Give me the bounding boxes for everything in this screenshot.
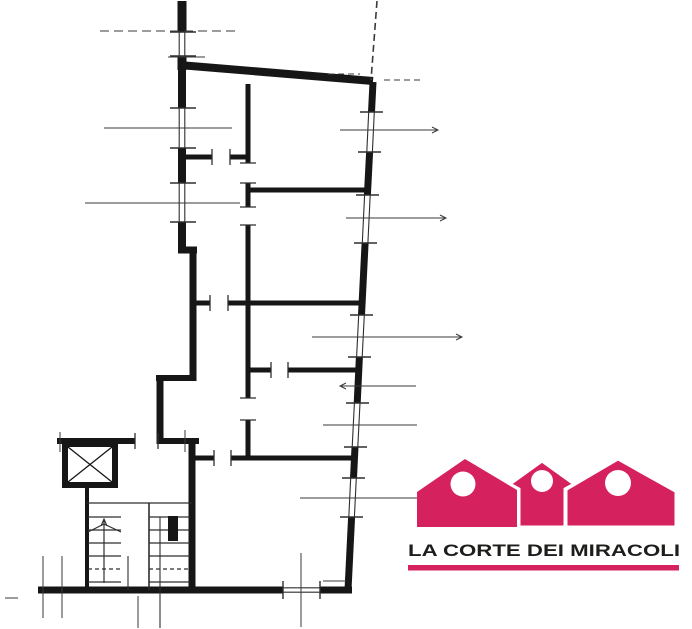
stair-door-leaf <box>168 516 178 541</box>
interior-walls <box>182 84 366 458</box>
window-right-3 <box>348 315 373 357</box>
floor-plan-sheet: LA CORTE DEI MIRACOLI <box>0 0 692 629</box>
window-left-stub <box>170 32 196 56</box>
house-left-window <box>451 472 476 497</box>
stairwell <box>87 503 192 628</box>
logo-underline <box>408 565 679 571</box>
page: LA CORTE DEI MIRACOLI <box>0 0 692 629</box>
dimension-lines <box>5 1 462 628</box>
boundary-dashed-line <box>371 1 377 80</box>
elevator-x-icon <box>68 447 112 482</box>
house-middle-window <box>531 470 553 492</box>
window-symbols <box>170 32 383 599</box>
floor-plan-drawing <box>5 1 462 628</box>
house-right-window <box>605 470 631 496</box>
logo-text: LA CORTE DEI MIRACOLI <box>408 541 680 560</box>
three-houses-icon <box>417 459 676 527</box>
elevator-shaft <box>65 444 115 485</box>
window-right-2 <box>354 195 379 243</box>
window-right-1 <box>358 112 383 152</box>
logo: LA CORTE DEI MIRACOLI <box>408 459 680 571</box>
